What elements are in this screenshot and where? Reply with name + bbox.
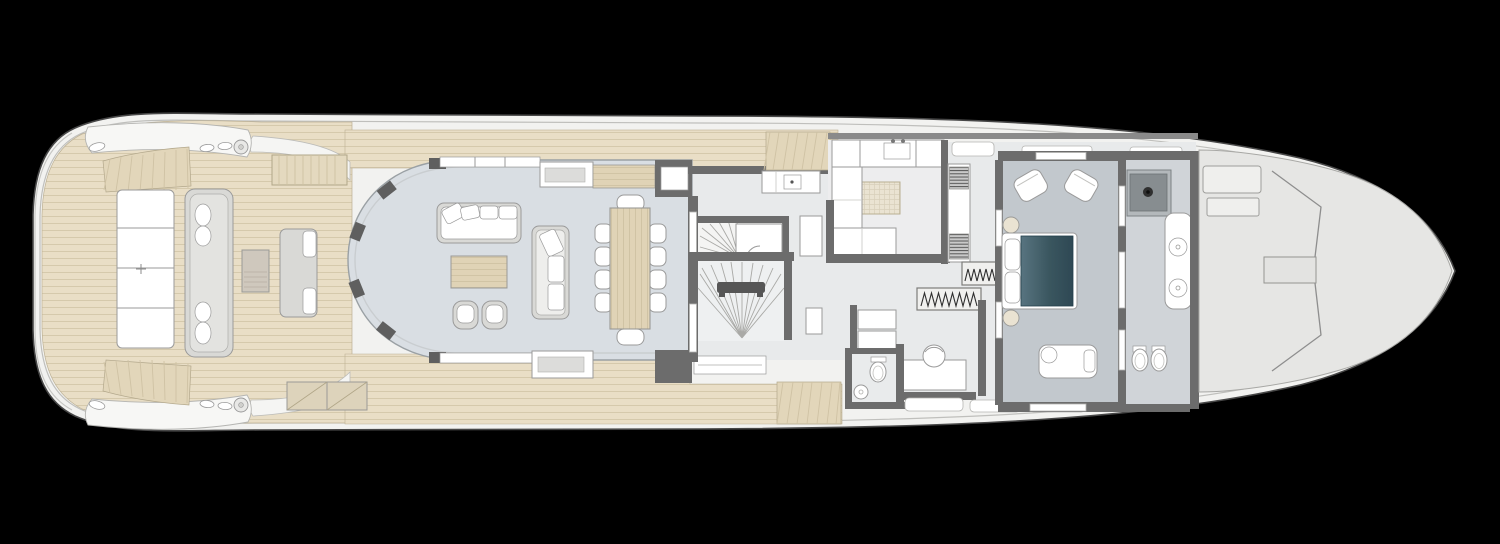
side-door-port xyxy=(690,212,697,258)
vanity-sink xyxy=(1169,279,1187,297)
pillow xyxy=(1005,272,1020,303)
window xyxy=(1036,153,1086,160)
aft-sofa xyxy=(185,189,233,357)
window xyxy=(1119,330,1125,370)
day-head xyxy=(845,344,905,409)
wardrobe-b xyxy=(917,288,981,310)
master-door xyxy=(996,302,1002,338)
vanity-sink xyxy=(1169,238,1187,256)
window xyxy=(1119,186,1125,226)
wall xyxy=(896,344,904,408)
wash-basin xyxy=(854,385,868,399)
wardrobe-a xyxy=(962,262,998,285)
winch-center xyxy=(239,145,244,150)
stair-wall xyxy=(698,216,786,223)
wall xyxy=(845,348,852,408)
foredeck-hatch xyxy=(1203,166,1261,193)
wall-right xyxy=(1190,151,1199,409)
office-wall-right xyxy=(978,300,986,396)
side-deck-stairs-port xyxy=(764,132,830,170)
galley-wall-bottom xyxy=(826,254,950,263)
toilet xyxy=(1132,349,1148,371)
office-cabinet xyxy=(858,331,896,350)
master-bathroom xyxy=(1124,151,1199,412)
transom-sunpad xyxy=(117,190,174,348)
lobby-cabinet-2 xyxy=(806,308,822,334)
coffee-table xyxy=(451,256,507,288)
galley-sink xyxy=(884,143,910,159)
office-cabinet xyxy=(858,310,896,329)
aft-coffee-table xyxy=(242,250,269,292)
aft-chaise-seats xyxy=(280,229,317,317)
wall-top xyxy=(1124,151,1190,160)
nightstand xyxy=(1003,310,1019,326)
sideboard-top xyxy=(545,168,585,182)
window xyxy=(996,210,1002,246)
pillow xyxy=(1005,239,1020,270)
fridge xyxy=(950,167,969,189)
bidet xyxy=(1151,349,1167,371)
staircase-down xyxy=(698,261,784,341)
dining-chair xyxy=(649,224,666,243)
dining-chair xyxy=(649,293,666,312)
deck-hatch-starboard xyxy=(287,382,367,410)
pantry-counter xyxy=(762,171,820,193)
wall xyxy=(845,348,903,354)
toilet xyxy=(870,362,886,382)
wall xyxy=(845,402,905,409)
dining-chair-end xyxy=(617,329,644,345)
deck-plan-drawing xyxy=(0,0,1500,544)
freezer xyxy=(950,234,969,259)
vanity xyxy=(1165,213,1192,309)
wall-bottom xyxy=(1124,404,1190,412)
chaise-longue xyxy=(1039,345,1097,378)
tv-screen xyxy=(661,167,688,190)
yacht-deck-plan xyxy=(0,0,1500,544)
master-bed xyxy=(1002,233,1077,309)
bath-door xyxy=(1119,252,1125,308)
wc-tank xyxy=(871,357,886,362)
foredeck-hatch xyxy=(1207,198,1259,216)
mattress xyxy=(1021,236,1073,306)
dining-chair xyxy=(649,270,666,289)
window xyxy=(1030,404,1086,411)
galley-wall-right xyxy=(941,140,948,264)
galley-island xyxy=(862,182,900,214)
office-chair xyxy=(923,345,945,367)
salon-window-band-starboard xyxy=(440,353,540,363)
wall-block-starboard xyxy=(655,350,692,383)
structure-wall-top xyxy=(828,133,1198,139)
salon-sofa xyxy=(437,202,521,243)
master-cabin xyxy=(995,151,1126,412)
skylight xyxy=(952,142,994,156)
lobby-mid-wall xyxy=(688,252,794,261)
galley-wall-left xyxy=(826,200,834,262)
anchor-locker xyxy=(1264,257,1316,283)
side-deck-stairs-starboard xyxy=(777,382,841,424)
salon-window-band-port xyxy=(440,157,540,167)
nightstand xyxy=(1003,217,1019,233)
sideboard-top xyxy=(538,357,584,372)
dining-table xyxy=(610,208,650,329)
shower xyxy=(1127,170,1171,216)
round-pillow xyxy=(1041,347,1057,363)
window-slot xyxy=(905,398,963,411)
appliance-column xyxy=(948,164,970,262)
deck-hatch-port xyxy=(272,155,347,185)
wood-cabinet-port xyxy=(593,165,655,188)
lobby-cabinet xyxy=(800,216,822,256)
salon-sofa-2 xyxy=(532,226,569,319)
side-door-starboard xyxy=(690,304,697,352)
stair-wall-right xyxy=(784,261,792,340)
stair-bench xyxy=(717,282,765,293)
dining-chair xyxy=(649,247,666,266)
